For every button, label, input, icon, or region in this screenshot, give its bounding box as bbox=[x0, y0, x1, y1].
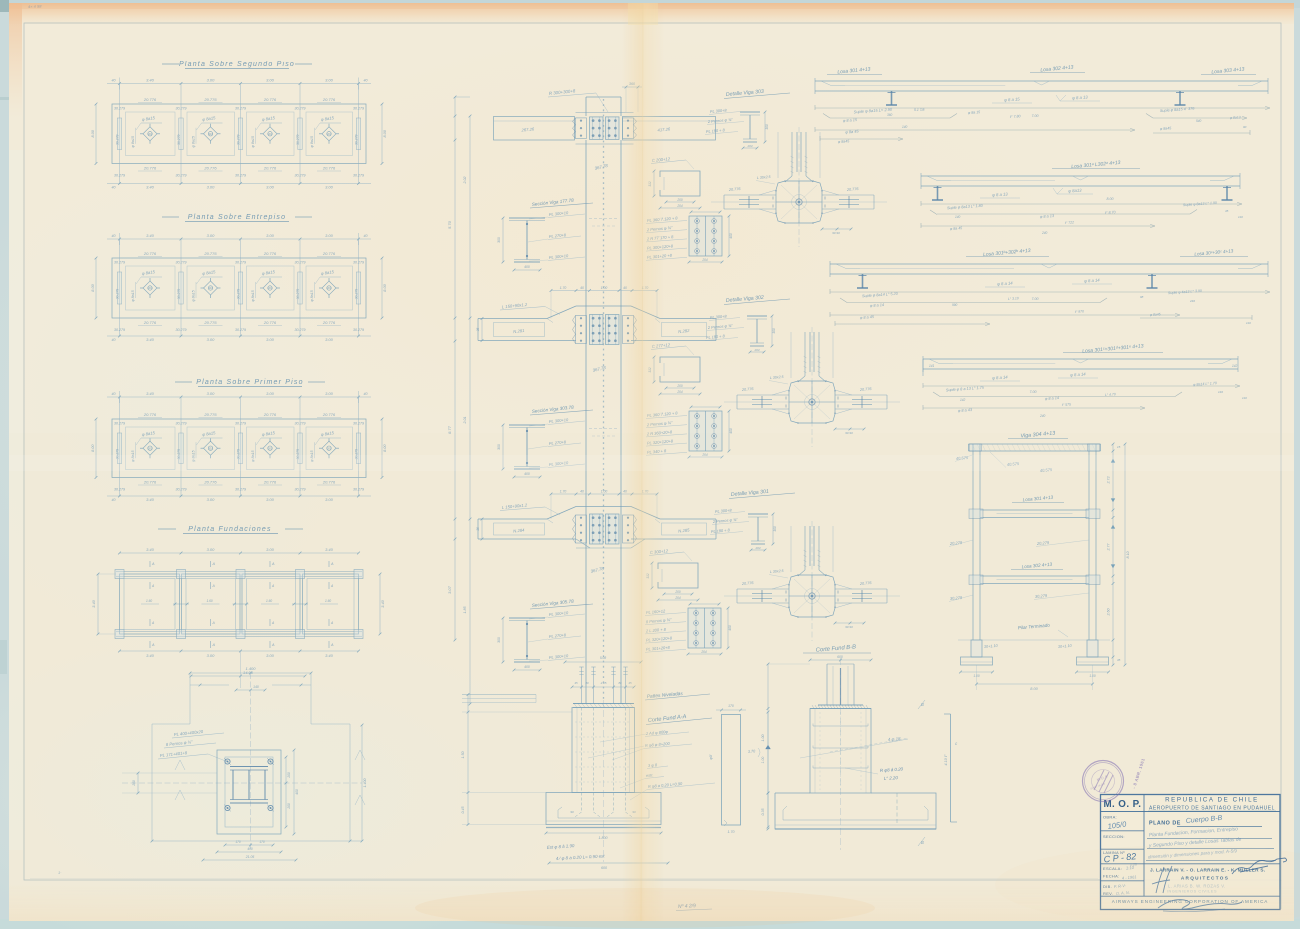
svg-text:4× 4 98: 4× 4 98 bbox=[28, 4, 42, 9]
svg-text:1.60: 1.60 bbox=[266, 599, 272, 603]
svg-text:30.279: 30.279 bbox=[295, 174, 306, 178]
svg-text:3.00: 3.00 bbox=[325, 391, 334, 396]
svg-text:141: 141 bbox=[929, 364, 935, 368]
svg-text:990: 990 bbox=[952, 303, 958, 307]
svg-text:200: 200 bbox=[676, 384, 683, 388]
svg-text:300: 300 bbox=[773, 526, 777, 532]
svg-text:45: 45 bbox=[574, 681, 578, 685]
svg-text:300: 300 bbox=[772, 328, 776, 334]
svg-text:3.00: 3.00 bbox=[207, 391, 216, 396]
svg-text:20.776: 20.776 bbox=[143, 412, 157, 417]
svg-text:21.05: 21.05 bbox=[245, 855, 255, 859]
svg-text:3.40: 3.40 bbox=[146, 185, 155, 190]
svg-text:20.776: 20.776 bbox=[263, 412, 277, 417]
svg-text:20.776: 20.776 bbox=[263, 166, 277, 171]
svg-text:A: A bbox=[330, 643, 334, 647]
svg-text:φ 8a15: φ 8a15 bbox=[310, 136, 314, 147]
svg-text:30.279: 30.279 bbox=[114, 328, 125, 332]
svg-text:ℓ° 722: ℓ° 722 bbox=[1064, 220, 1074, 225]
svg-text:20.776: 20.776 bbox=[322, 97, 336, 102]
svg-text:301: 301 bbox=[148, 132, 153, 136]
svg-text:8.00: 8.00 bbox=[91, 444, 95, 452]
svg-text:φ 8a15: φ 8a15 bbox=[310, 290, 314, 301]
svg-text:φ 8a15: φ 8a15 bbox=[251, 136, 255, 147]
svg-text:3.00: 3.00 bbox=[266, 547, 275, 552]
svg-text:142: 142 bbox=[1232, 364, 1238, 368]
svg-text:301: 301 bbox=[208, 446, 213, 450]
svg-text:40: 40 bbox=[364, 234, 368, 238]
svg-text:200: 200 bbox=[674, 590, 681, 594]
svg-text:φ 8a15: φ 8a15 bbox=[251, 290, 255, 301]
svg-text:30.279: 30.279 bbox=[353, 174, 364, 178]
svg-text:40: 40 bbox=[580, 286, 584, 290]
svg-text:1·: 1· bbox=[58, 870, 62, 875]
svg-text:0.35: 0.35 bbox=[761, 809, 765, 816]
svg-text:40: 40 bbox=[112, 234, 116, 238]
svg-text:30.279: 30.279 bbox=[176, 488, 187, 492]
svg-text:98: 98 bbox=[1140, 295, 1144, 299]
svg-text:3.00: 3.00 bbox=[325, 497, 334, 502]
svg-text:300: 300 bbox=[765, 124, 769, 130]
svg-text:30.279: 30.279 bbox=[295, 328, 306, 332]
svg-text:L° 3.10: L° 3.10 bbox=[1008, 296, 1019, 301]
svg-text:7.00: 7.00 bbox=[1030, 390, 1037, 394]
svg-text:OBRA:: OBRA: bbox=[1103, 815, 1117, 820]
svg-text:40: 40 bbox=[112, 79, 116, 83]
svg-text:1.70: 1.70 bbox=[728, 830, 735, 834]
svg-text:1.00: 1.00 bbox=[761, 757, 765, 764]
svg-text:Planta Sobre Primer Piso: Planta Sobre Primer Piso bbox=[196, 379, 303, 386]
svg-text:2.01: 2.01 bbox=[463, 417, 467, 425]
svg-text:30.279: 30.279 bbox=[114, 488, 125, 492]
svg-text:ℓ° 970: ℓ° 970 bbox=[1074, 309, 1084, 314]
svg-text:110: 110 bbox=[1238, 215, 1243, 219]
svg-text:20.776: 20.776 bbox=[322, 480, 336, 485]
svg-text:300: 300 bbox=[497, 444, 501, 450]
svg-text:φ 8a15: φ 8a15 bbox=[131, 136, 135, 147]
svg-text:3.00: 3.00 bbox=[325, 185, 334, 190]
svg-text:3.40: 3.40 bbox=[146, 391, 155, 396]
svg-text:301: 301 bbox=[327, 446, 332, 450]
svg-text:20.776: 20.776 bbox=[263, 480, 277, 485]
svg-text:7.00: 7.00 bbox=[1032, 114, 1039, 118]
svg-text:3.00: 3.00 bbox=[266, 337, 275, 342]
svg-text:Planta Fundaciones: Planta Fundaciones bbox=[188, 526, 271, 533]
svg-text:301: 301 bbox=[268, 446, 273, 450]
svg-text:204: 204 bbox=[701, 258, 708, 262]
svg-text:400: 400 bbox=[729, 233, 733, 239]
svg-text:3.00: 3.00 bbox=[207, 497, 216, 502]
svg-text:1.400: 1.400 bbox=[363, 779, 367, 788]
svg-text:240: 240 bbox=[1041, 231, 1048, 235]
svg-text:301: 301 bbox=[268, 132, 273, 136]
svg-text:0.45: 0.45 bbox=[461, 807, 465, 814]
svg-text:REPUBLICA DE CHILE: REPUBLICA DE CHILE bbox=[1165, 797, 1259, 804]
svg-text:A: A bbox=[212, 562, 216, 566]
svg-text:20.776: 20.776 bbox=[143, 480, 157, 485]
svg-text:600: 600 bbox=[601, 866, 607, 870]
svg-text:3.00: 3.00 bbox=[266, 185, 275, 190]
svg-text:20.776: 20.776 bbox=[203, 97, 217, 102]
svg-text:PLANO DE: PLANO DE bbox=[1149, 821, 1181, 827]
svg-text:A: A bbox=[271, 562, 275, 566]
svg-text:301: 301 bbox=[327, 132, 332, 136]
svg-text:20.776: 20.776 bbox=[203, 251, 217, 256]
svg-text:30.279: 30.279 bbox=[235, 174, 246, 178]
svg-text:5.1 7/8: 5.1 7/8 bbox=[914, 108, 924, 112]
svg-text:3.00: 3.00 bbox=[207, 653, 216, 658]
svg-text:3.00: 3.00 bbox=[325, 233, 334, 238]
svg-text:8.10: 8.10 bbox=[1126, 552, 1130, 559]
svg-text:30.279: 30.279 bbox=[355, 135, 359, 145]
svg-text:3.00: 3.00 bbox=[325, 337, 334, 342]
svg-text:20.776: 20.776 bbox=[263, 251, 277, 256]
svg-text:110: 110 bbox=[1246, 321, 1251, 325]
svg-text:1.00: 1.00 bbox=[761, 735, 765, 742]
svg-text:400: 400 bbox=[524, 665, 530, 669]
svg-text:8.00: 8.00 bbox=[383, 283, 387, 291]
svg-text:90: 90 bbox=[570, 810, 574, 814]
svg-text:3.40: 3.40 bbox=[146, 547, 155, 552]
svg-text:A: A bbox=[151, 562, 155, 566]
svg-text:400: 400 bbox=[295, 789, 299, 795]
svg-text:3.40: 3.40 bbox=[92, 599, 96, 607]
svg-text:3.40: 3.40 bbox=[146, 78, 155, 83]
svg-text:20.776: 20.776 bbox=[203, 320, 217, 325]
svg-text:3.00: 3.00 bbox=[207, 337, 216, 342]
svg-text:45: 45 bbox=[1225, 209, 1229, 213]
svg-text:φ0’: φ0’ bbox=[709, 754, 713, 759]
svg-text:1.00: 1.00 bbox=[601, 490, 608, 494]
svg-text:140: 140 bbox=[253, 685, 259, 689]
svg-text:8.00: 8.00 bbox=[383, 129, 387, 137]
svg-text:30.279: 30.279 bbox=[237, 289, 241, 299]
svg-text:400: 400 bbox=[524, 472, 530, 476]
svg-text:1.60: 1.60 bbox=[325, 599, 331, 603]
svg-text:φ 8a 45: φ 8a 45 bbox=[845, 128, 860, 134]
svg-text:20.776: 20.776 bbox=[263, 97, 277, 102]
svg-text:30.279: 30.279 bbox=[116, 135, 120, 145]
svg-text:40: 40 bbox=[112, 338, 116, 342]
svg-text:204: 204 bbox=[746, 144, 752, 148]
svg-text:3.00: 3.00 bbox=[207, 78, 216, 83]
svg-text:20.776: 20.776 bbox=[203, 480, 217, 485]
svg-text:360: 360 bbox=[887, 113, 893, 117]
svg-text:40: 40 bbox=[112, 498, 116, 502]
svg-text:8.00: 8.00 bbox=[91, 283, 95, 291]
svg-text:L° 4.70: L° 4.70 bbox=[1105, 392, 1116, 397]
svg-text:L° 2.20: L° 2.20 bbox=[884, 775, 899, 781]
svg-text:30.279: 30.279 bbox=[235, 488, 246, 492]
svg-text:SECCION:: SECCION: bbox=[1103, 834, 1125, 839]
svg-text:110: 110 bbox=[1242, 396, 1247, 400]
svg-text:φ 8a15: φ 8a15 bbox=[131, 290, 135, 301]
svg-text:30.279: 30.279 bbox=[237, 135, 241, 145]
svg-text:301: 301 bbox=[148, 446, 153, 450]
svg-text:20.776: 20.776 bbox=[143, 97, 157, 102]
svg-text:301: 301 bbox=[327, 286, 332, 290]
svg-text:142: 142 bbox=[960, 398, 966, 402]
svg-text:Planta Sobre Entrepiso: Planta Sobre Entrepiso bbox=[188, 214, 286, 221]
svg-text:3.40: 3.40 bbox=[146, 233, 155, 238]
svg-text:A: A bbox=[212, 643, 216, 647]
svg-text:20.776: 20.776 bbox=[143, 251, 157, 256]
svg-text:36: 36 bbox=[476, 328, 480, 332]
svg-text:2.73: 2.73 bbox=[1107, 477, 1111, 485]
svg-text:140: 140 bbox=[902, 125, 908, 129]
svg-text:B: B bbox=[921, 840, 924, 845]
svg-text:30.279: 30.279 bbox=[296, 135, 300, 145]
svg-text:A: A bbox=[151, 643, 155, 647]
svg-text:30.279: 30.279 bbox=[295, 488, 306, 492]
svg-text:1.60: 1.60 bbox=[207, 599, 213, 603]
svg-text:20.776: 20.776 bbox=[322, 251, 336, 256]
svg-text:40: 40 bbox=[112, 392, 116, 396]
svg-text:A: A bbox=[330, 562, 334, 566]
svg-text:7.00: 7.00 bbox=[1032, 297, 1039, 301]
svg-text:30.279: 30.279 bbox=[235, 328, 246, 332]
svg-text:3.00: 3.00 bbox=[266, 497, 275, 502]
svg-text:8.00: 8.00 bbox=[383, 444, 387, 452]
svg-text:20.776: 20.776 bbox=[322, 412, 336, 417]
svg-text:ℓ° 8.70: ℓ° 8.70 bbox=[1104, 210, 1116, 215]
svg-text:1.400: 1.400 bbox=[245, 666, 256, 671]
svg-text:400: 400 bbox=[524, 265, 530, 269]
svg-text:3.00: 3.00 bbox=[266, 78, 275, 83]
svg-text:4.10 ℓ°: 4.10 ℓ° bbox=[944, 754, 948, 766]
svg-text:20.776: 20.776 bbox=[203, 412, 217, 417]
svg-text:3.40: 3.40 bbox=[146, 497, 155, 502]
svg-text:170: 170 bbox=[235, 840, 241, 844]
svg-text:ℓ° 7.80: ℓ° 7.80 bbox=[1009, 114, 1021, 119]
svg-text:301: 301 bbox=[268, 286, 273, 290]
svg-text:200: 200 bbox=[132, 780, 136, 787]
svg-text:Planta Sobre Segundo Piso: Planta Sobre Segundo Piso bbox=[179, 61, 295, 68]
svg-text:20.776: 20.776 bbox=[143, 166, 157, 171]
svg-text:8.00: 8.00 bbox=[1107, 197, 1114, 201]
svg-text:3.40: 3.40 bbox=[146, 653, 155, 658]
svg-text:ℓ° 575: ℓ° 575 bbox=[1061, 402, 1071, 407]
svg-text:3.00: 3.00 bbox=[325, 78, 334, 83]
svg-text:φ 8a45: φ 8a45 bbox=[1160, 126, 1172, 131]
svg-text:301: 301 bbox=[208, 286, 213, 290]
svg-text:1.70: 1.70 bbox=[560, 286, 567, 290]
svg-text:301: 301 bbox=[148, 286, 153, 290]
svg-text:140: 140 bbox=[1218, 390, 1223, 394]
svg-text:30.279: 30.279 bbox=[116, 289, 120, 299]
svg-text:36: 36 bbox=[476, 527, 480, 531]
svg-text:90 90: 90 90 bbox=[845, 431, 853, 435]
svg-text:2.77: 2.77 bbox=[1107, 543, 1111, 552]
svg-text:30.279: 30.279 bbox=[177, 135, 181, 145]
svg-text:3.40: 3.40 bbox=[381, 599, 385, 607]
svg-text:3.40: 3.40 bbox=[325, 653, 334, 658]
svg-text:1.60: 1.60 bbox=[146, 599, 152, 603]
svg-text:3.00: 3.00 bbox=[207, 547, 216, 552]
svg-text:20.776: 20.776 bbox=[322, 166, 336, 171]
svg-text:φ 8a15: φ 8a15 bbox=[192, 136, 196, 147]
svg-text:20.776: 20.776 bbox=[322, 320, 336, 325]
svg-text:2.02: 2.02 bbox=[463, 177, 467, 185]
svg-text:20.776: 20.776 bbox=[143, 320, 157, 325]
svg-text:204: 204 bbox=[753, 348, 759, 352]
svg-text:204: 204 bbox=[700, 650, 707, 654]
svg-text:3.00: 3.00 bbox=[266, 233, 275, 238]
svg-text:1.70: 1.70 bbox=[560, 490, 567, 494]
svg-text:540: 540 bbox=[1196, 119, 1202, 123]
svg-text:1.85: 1.85 bbox=[463, 607, 467, 614]
svg-text:40: 40 bbox=[364, 79, 368, 83]
svg-text:φ 8a15: φ 8a15 bbox=[192, 290, 196, 301]
svg-text:301: 301 bbox=[208, 132, 213, 136]
svg-text:30.279: 30.279 bbox=[353, 488, 364, 492]
svg-text:φ 8a13: φ 8a13 bbox=[1230, 115, 1241, 120]
svg-text:3.00: 3.00 bbox=[207, 233, 216, 238]
svg-text:204: 204 bbox=[674, 596, 681, 600]
svg-text:1.800: 1.800 bbox=[599, 836, 608, 840]
svg-text:8.00: 8.00 bbox=[91, 129, 95, 137]
svg-text:400: 400 bbox=[247, 847, 253, 851]
svg-text:3.40: 3.40 bbox=[146, 337, 155, 342]
svg-text:8.00: 8.00 bbox=[1030, 687, 1038, 691]
svg-text:30.279: 30.279 bbox=[176, 328, 187, 332]
svg-text:AEROPUERTO DE SANTIAGO EN: AEROPUERTO DE SANTIAGO EN PUDAHUEL bbox=[1149, 806, 1275, 812]
svg-text:90: 90 bbox=[1243, 125, 1247, 129]
svg-text:φ 8a45: φ 8a45 bbox=[838, 139, 850, 144]
svg-text:30.279: 30.279 bbox=[176, 174, 187, 178]
svg-text:140: 140 bbox=[955, 215, 961, 219]
svg-text:45: 45 bbox=[1117, 658, 1121, 662]
svg-text:3.07: 3.07 bbox=[447, 585, 452, 594]
svg-text:40: 40 bbox=[364, 392, 368, 396]
svg-text:30.279: 30.279 bbox=[177, 289, 181, 299]
svg-text:A: A bbox=[271, 643, 275, 647]
svg-text:3.00: 3.00 bbox=[207, 185, 216, 190]
svg-text:5.70: 5.70 bbox=[447, 220, 452, 229]
svg-text:400: 400 bbox=[729, 428, 733, 434]
svg-text:40: 40 bbox=[112, 186, 116, 190]
svg-text:30.279: 30.279 bbox=[114, 174, 125, 178]
svg-text:40: 40 bbox=[580, 490, 584, 494]
svg-text:204: 204 bbox=[754, 546, 760, 550]
svg-text:30.279: 30.279 bbox=[355, 289, 359, 299]
svg-text:170: 170 bbox=[728, 704, 734, 708]
svg-text:2.60: 2.60 bbox=[1107, 609, 1111, 617]
svg-text:204: 204 bbox=[676, 204, 683, 208]
svg-text:3.00: 3.00 bbox=[266, 653, 275, 658]
svg-text:400: 400 bbox=[728, 625, 732, 631]
svg-text:φ 8a45: φ 8a45 bbox=[1150, 312, 1161, 317]
svg-text:30.279: 30.279 bbox=[353, 328, 364, 332]
svg-text:200: 200 bbox=[287, 772, 291, 779]
svg-text:170: 170 bbox=[259, 840, 265, 844]
svg-text:φ 8a13: φ 8a13 bbox=[1068, 188, 1082, 194]
svg-text:600: 600 bbox=[837, 655, 843, 659]
svg-text:300: 300 bbox=[497, 637, 501, 643]
svg-text:8.77: 8.77 bbox=[447, 425, 452, 434]
svg-text:80: 80 bbox=[618, 681, 622, 685]
svg-text:300: 300 bbox=[497, 237, 501, 243]
svg-text:15: 15 bbox=[1117, 445, 1121, 449]
svg-text:5.08: 5.08 bbox=[600, 656, 606, 660]
svg-text:240: 240 bbox=[1039, 414, 1046, 418]
svg-text:1.50: 1.50 bbox=[461, 752, 465, 759]
svg-text:20.776: 20.776 bbox=[203, 166, 217, 171]
svg-text:3.40: 3.40 bbox=[325, 547, 334, 552]
svg-text:20.776: 20.776 bbox=[263, 320, 277, 325]
svg-text:3.00: 3.00 bbox=[266, 391, 275, 396]
svg-text:204: 204 bbox=[676, 390, 683, 394]
svg-text:80: 80 bbox=[585, 681, 589, 685]
svg-text:90 90: 90 90 bbox=[845, 625, 853, 629]
svg-text:90 90: 90 90 bbox=[832, 231, 840, 235]
svg-text:1.00: 1.00 bbox=[601, 286, 608, 290]
svg-text:2.15: 2.15 bbox=[600, 681, 607, 685]
svg-text:240: 240 bbox=[1189, 299, 1195, 303]
svg-text:200: 200 bbox=[287, 803, 291, 810]
svg-text:200: 200 bbox=[676, 198, 683, 202]
svg-text:30.279: 30.279 bbox=[296, 289, 300, 299]
